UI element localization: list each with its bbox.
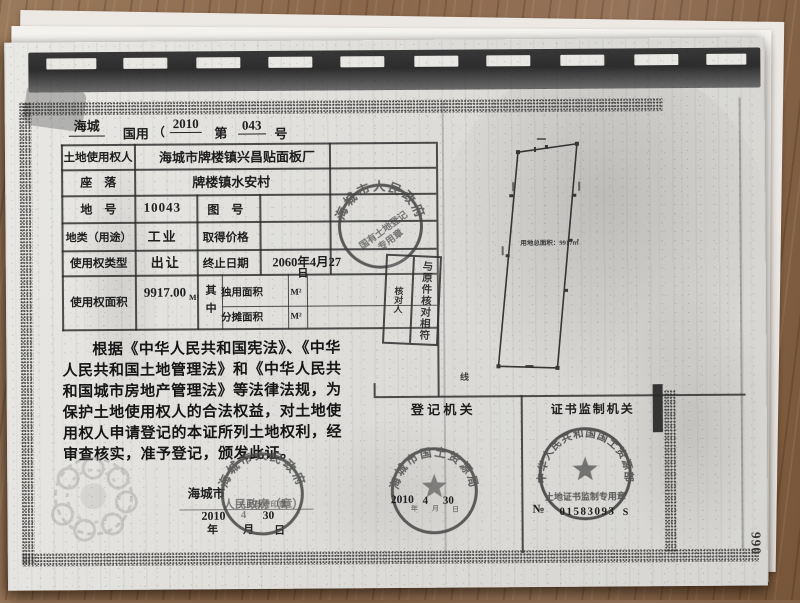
government-seal: 海城市人民政府 人民政府印章 — [212, 444, 313, 545]
band-white-tab — [340, 56, 384, 67]
registry-date-month-char: 月 — [432, 504, 439, 514]
ink-smudge-bar — [653, 384, 663, 432]
svg-text:海城市人民政府: 海城市人民政府 — [332, 178, 428, 221]
plot-seam-marker: 线 — [460, 370, 469, 383]
seal-serial-suffix: S — [623, 507, 629, 518]
cell-end-date-label: 终止日期 — [203, 255, 249, 271]
verification-stamp: 与原件核对相符 核对人 — [382, 254, 442, 346]
header-hao: 号 — [274, 123, 287, 142]
header-serial: 043 — [238, 117, 266, 134]
band-white-tab — [268, 57, 312, 68]
booklet-edge-band — [28, 47, 760, 92]
page-number: 990 — [748, 532, 764, 555]
header-region: 海城 — [69, 116, 105, 137]
legal-text-line: 和国城市房地产管理法》等法律法规，为 — [63, 378, 342, 401]
cell-land-user-label: 土地使用权人 — [63, 149, 132, 165]
svg-text:海城市人民政府: 海城市人民政府 — [215, 447, 309, 489]
svg-text:人民政府印章: 人民政府印章 — [238, 499, 286, 509]
band-white-tab — [196, 57, 240, 68]
cell-parcel-no-value: 10043 — [144, 200, 182, 216]
header-di-label: 第 — [214, 123, 227, 142]
cell-area-label: 使用权面积 — [70, 294, 128, 310]
registry-authority-label: 登 记 机 关 — [411, 399, 473, 418]
legal-text-line: 根据《中华人民共和国宪法》、《中华 — [92, 336, 341, 359]
cell-land-class-label: 地类（用途） — [65, 229, 131, 245]
seal-serial-number: 01583093 — [559, 506, 615, 518]
svg-text:用地总面积：9917㎡: 用地总面积：9917㎡ — [519, 238, 579, 247]
cell-qizhong-label: 其中 — [202, 284, 218, 320]
registry-date-day-char: 日 — [452, 505, 459, 515]
header-year: 2010 — [170, 116, 202, 133]
cell-end-date-value-wrap: 日 — [297, 265, 308, 281]
verification-stamp-sub-text: 核对人 — [384, 256, 413, 343]
cell-location-value: 牌楼镇水安村 — [192, 171, 270, 191]
cell-area-value: 9917.00 — [144, 284, 186, 300]
cell-map-no-label: 图 号 — [207, 201, 243, 218]
flower-stamp — [38, 442, 149, 553]
header-doc-type: 国用 — [123, 123, 149, 142]
registry-date-month: 4 — [423, 495, 429, 507]
band-white-tab — [486, 55, 530, 66]
legal-text-line: 人民共和国土地管理法》和《中华人民共 — [62, 357, 341, 380]
parcel-plot-diagram: 用地总面积：9917㎡ — [479, 134, 611, 385]
cell-parcel-no-label: 地 号 — [80, 200, 116, 217]
legal-text-line: 保护土地使用权人的合法权益，对土地使 — [63, 399, 342, 422]
legal-text-line: 用权人申请登记的本证所列土地权利，经 — [63, 420, 342, 443]
svg-text:土地证书监制专用章: 土地证书监制专用章 — [545, 490, 626, 502]
cell-shared-area-unit: M² — [290, 311, 301, 321]
cell-area-unit: M² — [189, 293, 199, 302]
band-white-tab — [414, 56, 458, 67]
verification-stamp-main-text: 与原件核对相符 — [411, 257, 440, 344]
cell-right-type-value: 出让 — [151, 252, 181, 271]
certificate-supervisor-label: 证书监制机关 — [551, 400, 635, 418]
cell-location-label: 座 落 — [80, 173, 116, 190]
cell-exclusive-area-unit: M² — [290, 287, 301, 297]
band-white-tab — [706, 54, 746, 65]
band-white-tab — [123, 58, 167, 69]
band-white-tab — [46, 58, 96, 69]
section-divider-line — [374, 383, 376, 396]
cell-land-user-value: 海城市牌楼镇兴昌贴面板厂 — [159, 146, 315, 166]
border-right — [664, 390, 677, 552]
band-white-tab — [560, 55, 604, 66]
cell-land-class-value: 工业 — [147, 226, 177, 245]
seal-serial-prefix: № — [532, 501, 544, 516]
photocopy-document: 海城 国用 （ 2010 第 043 号 土地使用权人 海城市牌楼镇兴昌贴面板厂… — [0, 0, 800, 603]
registry-date-year-char: 年 — [411, 504, 418, 514]
cell-shared-area-label: 分摊面积 — [221, 309, 263, 324]
band-white-tab — [634, 54, 678, 65]
land-bureau-seal: 海城市国土资源局 — [386, 444, 483, 541]
cell-right-type-label: 使用权类型 — [70, 255, 128, 271]
cell-price-label: 取得价格 — [203, 229, 249, 245]
cell-exclusive-area-label: 独用面积 — [221, 284, 263, 299]
header-paren-open: （ — [153, 123, 165, 140]
